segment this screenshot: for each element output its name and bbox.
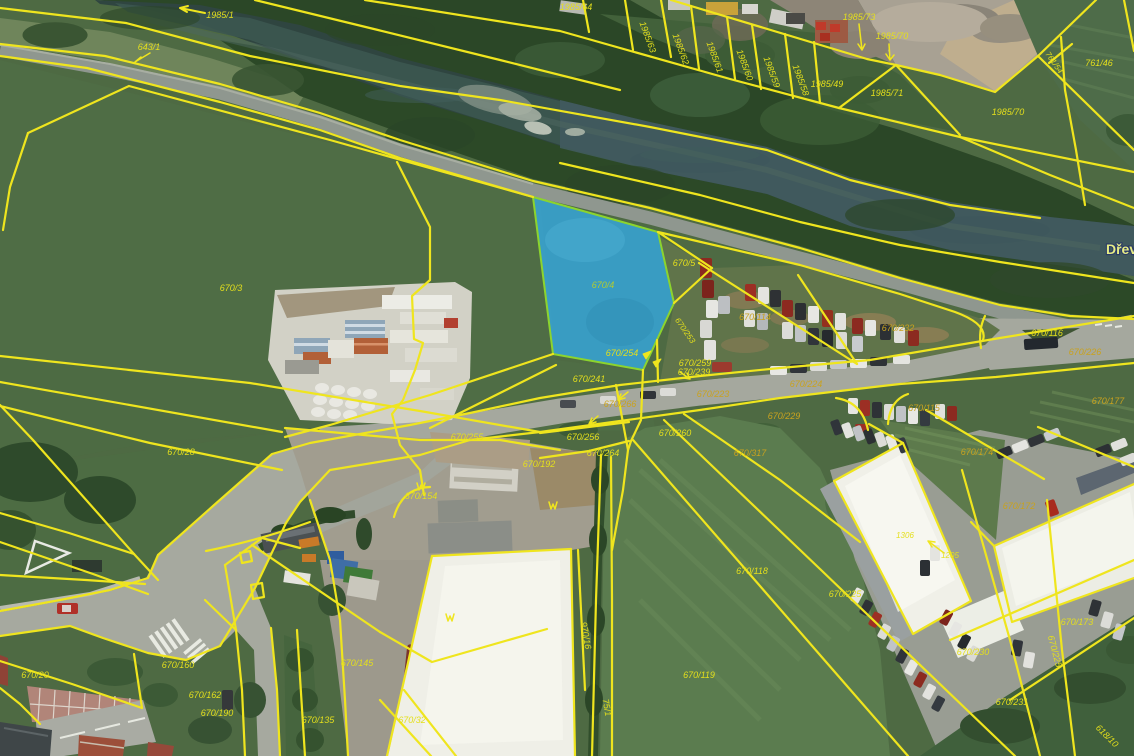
svg-text:670/3: 670/3 <box>220 283 243 293</box>
svg-text:1985/70: 1985/70 <box>992 107 1025 117</box>
svg-text:670/260: 670/260 <box>659 428 692 438</box>
svg-text:670/256: 670/256 <box>567 432 600 442</box>
svg-text:670/192: 670/192 <box>523 459 556 469</box>
svg-text:670/119: 670/119 <box>683 670 715 680</box>
svg-text:670/223: 670/223 <box>697 389 730 399</box>
svg-text:670/224: 670/224 <box>790 379 823 389</box>
svg-text:670/241: 670/241 <box>573 374 606 384</box>
svg-text:1985/64: 1985/64 <box>560 2 593 12</box>
svg-text:670/118: 670/118 <box>736 566 768 576</box>
svg-text:670/254: 670/254 <box>606 348 639 358</box>
svg-text:670/20: 670/20 <box>21 670 49 680</box>
svg-text:670/255: 670/255 <box>451 432 485 442</box>
svg-text:670/229: 670/229 <box>768 411 801 421</box>
svg-text:670/28: 670/28 <box>167 447 195 457</box>
svg-text:670/5: 670/5 <box>673 258 697 268</box>
svg-text:670/266: 670/266 <box>604 399 637 409</box>
svg-text:670/115: 670/115 <box>908 403 941 413</box>
svg-text:761/46: 761/46 <box>1085 58 1113 68</box>
svg-text:670/4: 670/4 <box>592 280 615 290</box>
svg-text:670/231: 670/231 <box>996 697 1029 707</box>
svg-text:670/160: 670/160 <box>162 660 195 670</box>
svg-text:670/173: 670/173 <box>1061 617 1094 627</box>
svg-text:1985/1: 1985/1 <box>206 10 234 20</box>
svg-text:1985/70: 1985/70 <box>876 31 909 41</box>
svg-text:670/145: 670/145 <box>341 658 375 668</box>
svg-text:670/232: 670/232 <box>882 323 915 333</box>
svg-text:Dřevn: Dřevn <box>1106 241 1134 257</box>
svg-text:643/1: 643/1 <box>138 42 161 52</box>
svg-text:670/190: 670/190 <box>201 708 234 718</box>
svg-text:670/177: 670/177 <box>1092 396 1126 406</box>
svg-text:670/174: 670/174 <box>961 447 994 457</box>
svg-text:670/264: 670/264 <box>587 448 620 458</box>
svg-text:1985/49: 1985/49 <box>811 79 844 89</box>
svg-text:670/116: 670/116 <box>1031 328 1063 338</box>
svg-text:670/135: 670/135 <box>302 715 336 725</box>
svg-text:670/226: 670/226 <box>1069 347 1102 357</box>
svg-text:670/225: 670/225 <box>829 589 863 599</box>
svg-text:670/32: 670/32 <box>398 715 426 725</box>
svg-text:1205: 1205 <box>941 551 959 560</box>
svg-text:670/172: 670/172 <box>1003 501 1036 511</box>
svg-text:670/114: 670/114 <box>739 312 771 322</box>
svg-text:670/230: 670/230 <box>957 647 990 657</box>
svg-text:670/162: 670/162 <box>189 690 222 700</box>
svg-text:670/317: 670/317 <box>734 448 768 458</box>
svg-text:670/154: 670/154 <box>405 491 438 501</box>
svg-text:1985/73: 1985/73 <box>843 12 876 22</box>
svg-text:1306: 1306 <box>896 531 914 540</box>
svg-text:670/239: 670/239 <box>678 367 711 377</box>
svg-text:1985/71: 1985/71 <box>871 88 904 98</box>
